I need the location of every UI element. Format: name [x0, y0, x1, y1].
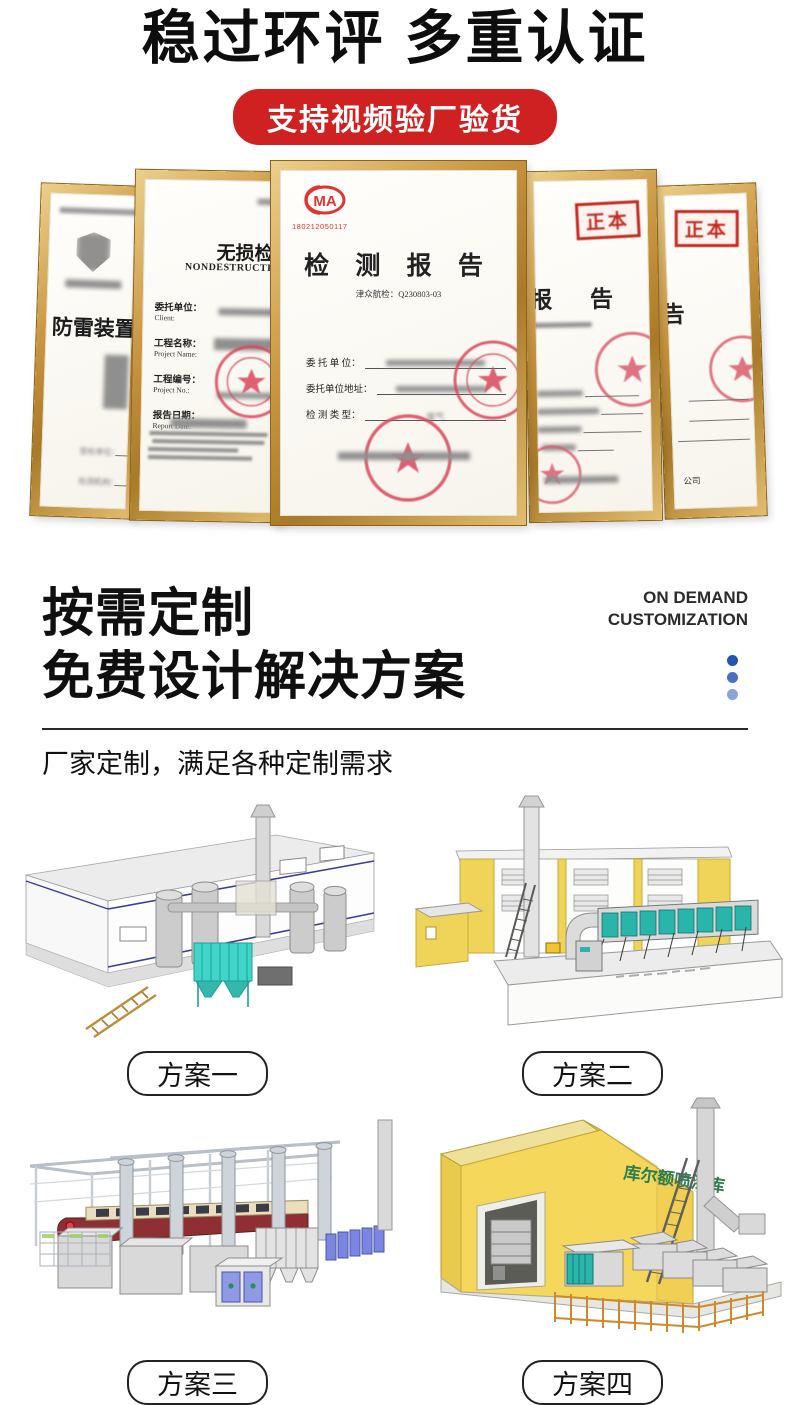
- red-seal-icon: [705, 331, 757, 405]
- report-title-partial: 告: [664, 295, 686, 330]
- red-seal-icon: [212, 342, 280, 421]
- certificate-frame-ndt: 无损检测 NONDESTRUCTIVE 委托单位：Client: 工程名称：Pr…: [130, 169, 289, 522]
- customization-title-en: ON DEMAND CUSTOMIZATION: [608, 587, 748, 631]
- hero-header: 稳过环评 多重认证 支持视频验厂验货: [0, 0, 790, 145]
- cma-logo-icon: MA 180212050117: [292, 184, 348, 231]
- plan-label-3: 方案三: [127, 1360, 268, 1405]
- certificate-field-label: 受检单位：: [79, 445, 119, 457]
- plan1-illustration-factory-scrubbers: [8, 791, 388, 1047]
- customization-section: 按需定制 免费设计解决方案 ON DEMAND CUSTOMIZATION 厂家…: [0, 559, 790, 781]
- plan-card-4: 库尔额喷漆库: [395, 1096, 790, 1405]
- dot-icon: [727, 689, 738, 700]
- report-title: 检 测 报 告: [280, 246, 517, 282]
- plan-label-1: 方案一: [127, 1051, 268, 1096]
- certificate-paper: 正本 报 告: [533, 179, 653, 513]
- report-title-partial: 报 告: [533, 279, 629, 315]
- plan2-illustration-yellow-plant: [398, 791, 788, 1047]
- certificate-paper: MA 180212050117 检 测 报 告 津众航检：Q230803-03 …: [280, 170, 517, 516]
- certificate-field-label: 检测机构：: [78, 475, 118, 487]
- cma-number: 180212050117: [292, 222, 348, 231]
- plans-section: 方案一: [0, 791, 790, 1405]
- plan-card-1: 方案一: [0, 791, 395, 1096]
- page-title: 稳过环评 多重认证: [0, 6, 790, 73]
- report-number: 津众航检：Q230803-03: [280, 288, 517, 300]
- certificate-subtitle: NONDESTRUCTIVE: [185, 261, 280, 274]
- certificate-frame-inspection-report: MA 180212050117 检 测 报 告 津众航检：Q230803-03 …: [271, 161, 526, 525]
- certificate-title: 防雷装置: [51, 310, 136, 343]
- video-inspection-badge: 支持视频验厂验货: [233, 89, 557, 145]
- red-seal-icon: [592, 328, 653, 409]
- svg-text:MA: MA: [313, 193, 336, 210]
- red-seal-icon: [451, 338, 517, 422]
- dot-icon: [727, 672, 738, 683]
- plan-card-3: 方案三: [0, 1096, 395, 1405]
- certificate-header-logo: [60, 207, 137, 216]
- red-seal-icon: [533, 442, 585, 507]
- certificate-frame-report-copy1: 正本 报 告: [524, 170, 662, 522]
- plan-label-2: 方案二: [522, 1051, 663, 1096]
- original-copy-stamp: 正本: [675, 210, 739, 247]
- certificate-paper: 防雷装置 受检单位： 检测机构：: [40, 192, 137, 509]
- shield-logo-icon: [76, 231, 111, 272]
- plan3-illustration-train-workshop: [0, 1096, 395, 1354]
- plan-label-4: 方案四: [522, 1360, 663, 1405]
- certificate-frame-report-copy2: 正本 告 公司: [654, 183, 767, 518]
- original-copy-stamp: 正本: [575, 200, 641, 240]
- certificate-paper: 正本 告 公司: [664, 192, 758, 509]
- dot-icon: [727, 655, 738, 666]
- customization-description: 厂家定制，满足各种定制需求: [42, 742, 748, 781]
- certificate-paper: 无损检测 NONDESTRUCTIVE 委托单位：Client: 工程名称：Pr…: [139, 179, 280, 513]
- decorative-dots: [727, 655, 738, 700]
- plan-card-2: 方案二: [395, 791, 790, 1096]
- divider: [42, 728, 748, 730]
- certificates-section: 防雷装置 受检单位： 检测机构： 无损检测 NONDESTRUCTIVE 委托单…: [0, 159, 790, 559]
- certificate-frame-lightning: 防雷装置 受检单位： 检测机构：: [30, 183, 146, 518]
- company-name-partial: 公司: [683, 474, 700, 487]
- plan4-illustration-paint-warehouse: 库尔额喷漆库: [395, 1096, 790, 1354]
